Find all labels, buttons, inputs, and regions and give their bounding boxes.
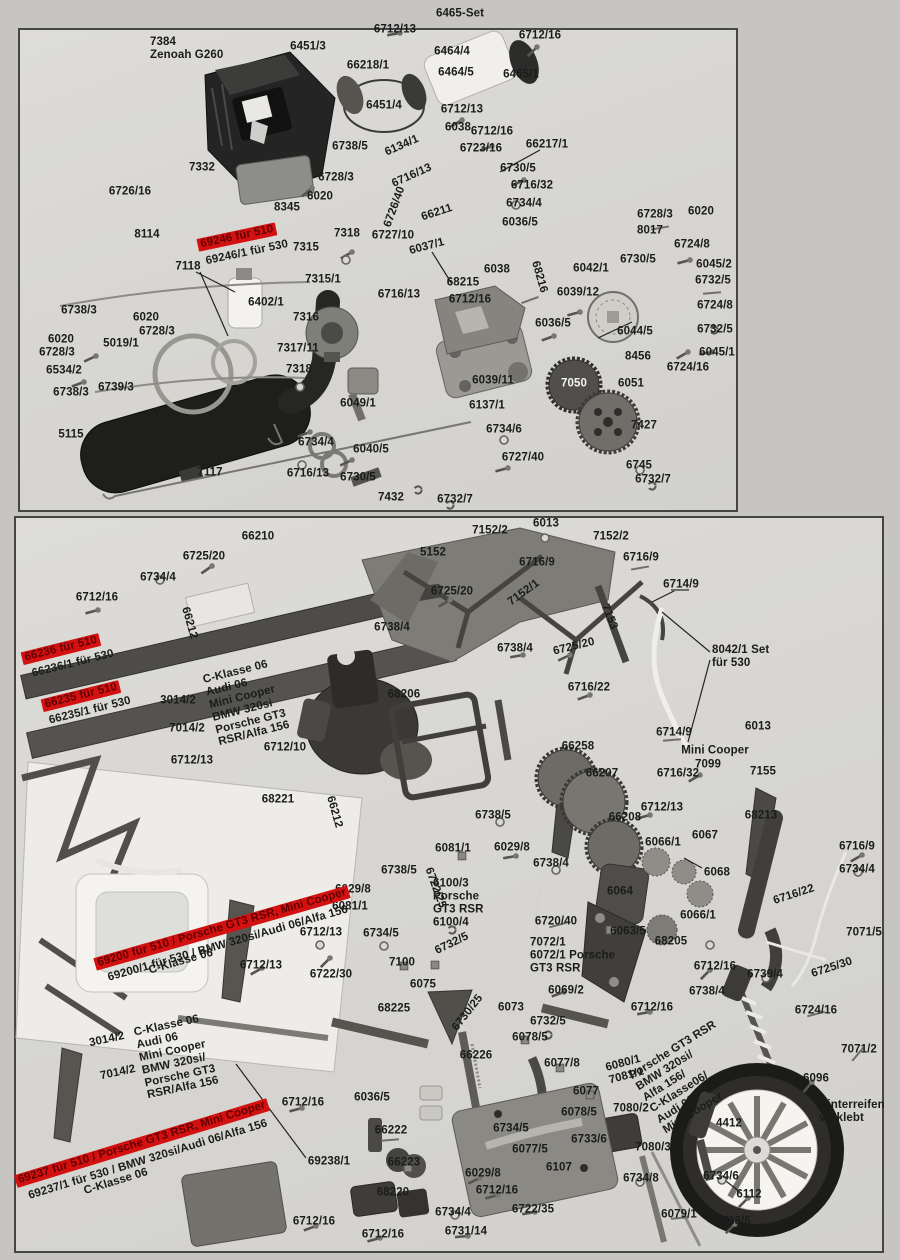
exploded-parts-diagram-page: { "colors": { "highlight_band": "#d41111…	[0, 0, 900, 1260]
part-label: 68220	[377, 1187, 409, 1200]
part-label: 6134/1	[383, 133, 421, 159]
part-label: 6732/5	[695, 275, 731, 288]
part-label: 6039/11	[472, 375, 514, 388]
part-label: 6044/5	[617, 326, 653, 339]
part-label: 66218/1	[347, 60, 389, 73]
part-label: 7100	[389, 957, 415, 970]
part-label: 6716/32	[657, 768, 699, 781]
part-label: 6064	[607, 886, 633, 899]
part-label: 6712/13	[374, 24, 416, 37]
part-label: C-Klasse 06 Audi 06 Mini Cooper BMW 320s…	[133, 1012, 220, 1103]
part-label: 6714/9	[663, 579, 699, 592]
part-label: 6036/5	[502, 217, 538, 230]
part-label: 68221	[262, 794, 294, 807]
part-label: 6465-Set	[436, 8, 484, 21]
part-label: 6712/10	[264, 742, 306, 755]
part-label: 6112	[736, 1189, 761, 1202]
part-label: 6465/1	[503, 69, 539, 82]
part-label: 68225	[378, 1003, 410, 1016]
part-label: 6077	[573, 1086, 599, 1099]
part-label: 6040/5	[353, 444, 389, 457]
part-label: 6730/5	[500, 163, 536, 176]
part-label: 6738/6	[715, 1216, 751, 1229]
part-label: 7153	[598, 603, 620, 632]
part-label: 6712/16	[631, 1002, 673, 1015]
part-label: 6712/16	[519, 30, 561, 43]
part-label: 6038	[445, 122, 471, 135]
part-label: 6739/3	[98, 382, 134, 395]
part-label: 68213	[745, 810, 777, 823]
part-label: 6734/5	[493, 1123, 529, 1136]
part-label: 6020	[133, 312, 159, 325]
part-label: 6067	[692, 830, 718, 843]
part-label: 6100/3 Porsche GT3 RSR 6100/4	[433, 877, 484, 929]
part-label: 6712/13	[641, 802, 683, 815]
part-label: 7152/2	[472, 525, 508, 538]
part-label: 6029/8	[494, 842, 530, 855]
part-label: 6078/5	[512, 1032, 548, 1045]
part-label: 6712/16	[76, 592, 118, 605]
part-label: Hinterreifen verklebt	[819, 1099, 885, 1125]
part-label: 6725/20	[552, 636, 596, 659]
part-label: 6738/4	[533, 858, 569, 871]
part-label: 6716/9	[839, 841, 875, 854]
part-label: 6734/6	[703, 1171, 739, 1184]
part-label: 6716/22	[568, 682, 610, 695]
part-label: 8456	[625, 351, 651, 364]
part-label: 6068	[704, 867, 730, 880]
part-label: 66208	[609, 812, 641, 825]
part-label: 66211	[420, 202, 454, 224]
part-label: 6732/7	[437, 494, 473, 507]
part-label: 6724/16	[667, 362, 709, 375]
part-label: 6738/4	[689, 986, 725, 999]
part-label: 6734/4	[435, 1207, 471, 1220]
part-label: 6045/1	[699, 347, 735, 360]
part-label: 6723/16	[460, 143, 502, 156]
part-label: 6738/5	[332, 141, 368, 154]
part-label: 6734/4	[298, 437, 334, 450]
part-label: 6451/4	[366, 100, 402, 113]
part-label: 7080/3	[635, 1142, 671, 1155]
part-label: 6063/5	[610, 926, 646, 939]
part-label: 66210	[242, 531, 274, 544]
part-label: 6724/8	[674, 239, 710, 252]
part-label: 7014/2	[99, 1063, 137, 1083]
part-label: 3014/2	[160, 695, 196, 708]
part-label: C-Klasse 06 Audi 06 Mini Cooper BMW 320s…	[202, 657, 291, 750]
part-label: 8042/1 Set für 530	[712, 644, 769, 670]
part-label: 6738/3	[61, 305, 97, 318]
part-label: 66212	[178, 606, 199, 641]
part-label: 66207	[586, 768, 618, 781]
part-label: 6039/12	[557, 287, 599, 300]
part-label: 6738/4	[497, 643, 533, 656]
part-label: 8114	[134, 229, 159, 242]
part-label: 6745	[626, 460, 652, 473]
part-label: 6714/9	[656, 727, 692, 740]
part-label: 6077/5	[512, 1144, 548, 1157]
part-label: 6738/5	[475, 810, 511, 823]
part-label: 6078/5	[561, 1107, 597, 1120]
part-label: 7155	[750, 766, 776, 779]
part-label: 6712/13	[240, 960, 282, 973]
part-label: 7432	[378, 492, 404, 505]
part-label: 6464/5	[438, 67, 474, 80]
part-label: 7072/1 6072/1 Porsche GT3 RSR	[530, 937, 615, 976]
part-label: 7152/1	[506, 577, 543, 608]
part-label: 6727/10	[372, 230, 414, 243]
part-label: 68206	[388, 689, 420, 702]
part-label: 66223	[388, 1157, 420, 1170]
part-label: 6716/13	[378, 289, 420, 302]
part-label: 6725/30	[810, 955, 854, 980]
part-label: 6020	[688, 206, 714, 219]
part-label: 6722/30	[310, 969, 352, 982]
part-label: 6073	[498, 1002, 524, 1015]
part-label: 5115	[58, 429, 83, 442]
part-label: 6731/14	[445, 1226, 487, 1239]
part-label: 68215	[447, 277, 479, 290]
part-label: 6045/2	[696, 259, 732, 272]
part-label: 6712/16	[282, 1097, 324, 1110]
part-label: 6725/20	[431, 586, 473, 599]
part-label: 6716/9	[623, 552, 659, 565]
part-label: 6732/5	[433, 930, 471, 957]
part-label: 6029/8	[465, 1168, 501, 1181]
part-label: 6137/1	[469, 400, 505, 413]
part-label: 6727/40	[502, 452, 544, 465]
part-label: 6734/4	[140, 572, 176, 585]
part-label: 6451/3	[290, 41, 326, 54]
part-label: 68216	[528, 260, 549, 295]
part-label: 6069/2	[548, 985, 584, 998]
part-label: 6049/1	[340, 398, 376, 411]
part-label: 6534/2	[46, 365, 82, 378]
part-label: 6013	[745, 721, 771, 734]
part-label: 6734/5	[363, 928, 399, 941]
part-label: 6712/16	[293, 1216, 335, 1229]
part-label: 6107	[546, 1162, 572, 1175]
part-label: 7332	[189, 162, 215, 175]
part-label: 6725/20	[183, 551, 225, 564]
part-label: 6739/4	[747, 969, 783, 982]
part-label: 6036/5	[535, 318, 571, 331]
part-label: 7080/2	[613, 1103, 649, 1116]
part-label: 7318	[334, 228, 360, 241]
part-label: 7427	[631, 420, 657, 433]
part-label: 6728/3	[318, 172, 354, 185]
part-label: 6464/4	[434, 46, 470, 59]
part-label: 6724/16	[795, 1005, 837, 1018]
part-label: 6733/6	[571, 1134, 607, 1147]
part-label: 6732/7	[635, 474, 671, 487]
part-label: 6728/3	[637, 209, 673, 222]
part-label: 7315	[293, 242, 319, 255]
part-label: 4412	[716, 1118, 742, 1131]
part-label: 6038	[484, 264, 510, 277]
part-label: 6726/40	[382, 185, 409, 229]
part-label: 7318	[286, 364, 312, 377]
part-label: 8345	[274, 202, 300, 215]
part-label: 6730/5	[620, 254, 656, 267]
part-label: 6734/6	[486, 424, 522, 437]
part-label: 7117	[197, 467, 222, 480]
part-label: 8017	[637, 225, 663, 238]
part-label: 7118	[175, 261, 200, 274]
part-label: 6716/13	[287, 468, 329, 481]
part-label: 66226	[460, 1050, 492, 1063]
part-label: 6738/5	[381, 865, 417, 878]
part-label: 6712/16	[362, 1229, 404, 1242]
part-label: 66212	[323, 795, 344, 830]
part-label: 6712/16	[694, 961, 736, 974]
part-label: 6712/16	[476, 1185, 518, 1198]
part-label: 6728/3	[139, 326, 175, 339]
part-label: 6077/8	[544, 1058, 580, 1071]
part-label: 6020	[307, 191, 333, 204]
part-label: 69238/1	[308, 1156, 350, 1169]
part-label: 6728/3	[39, 347, 75, 360]
part-label: 68205	[655, 936, 687, 949]
part-label: 6716/9	[519, 557, 555, 570]
part-label: 6724/8	[697, 300, 733, 313]
part-label: 6732/5	[697, 324, 733, 337]
part-label: 6066/1	[680, 910, 716, 923]
part-label: 7071/2	[841, 1044, 877, 1057]
part-label: 6726/16	[109, 186, 151, 199]
part-label: 6734/4	[506, 198, 542, 211]
part-label: 6712/16	[471, 126, 513, 139]
part-label: 6402/1	[248, 297, 284, 310]
part-label: 6732/5	[530, 1016, 566, 1029]
part-label: 6712/13	[441, 104, 483, 117]
part-label: 6051	[618, 378, 644, 391]
part-label: 6079/1	[661, 1209, 697, 1222]
part-label: 6738/3	[53, 387, 89, 400]
part-label: 5152	[420, 547, 446, 560]
labels-layer: 6465-Set6712/136712/167384 Zenoah G26064…	[0, 0, 900, 1260]
part-label: 6020	[48, 334, 74, 347]
part-label: 6036/5	[354, 1092, 390, 1105]
part-label: 6730/25	[450, 992, 486, 1033]
part-label: 6712/13	[300, 927, 342, 940]
part-label: 7384 Zenoah G260	[150, 36, 223, 62]
part-label: 6066/1	[645, 837, 681, 850]
part-label: 66258	[562, 741, 594, 754]
part-label: 6716/22	[772, 882, 816, 907]
part-label: 3014/2	[88, 1030, 126, 1050]
part-label: 5019/1	[103, 338, 139, 351]
part-label: 6734/8	[623, 1173, 659, 1186]
part-label: 6081/1	[435, 843, 471, 856]
part-label: 6734/4	[839, 864, 875, 877]
part-label: 7071/5	[846, 927, 882, 940]
part-label: 6738/4	[374, 622, 410, 635]
part-label: 66222	[375, 1125, 407, 1138]
part-label: Mini Cooper	[681, 745, 749, 758]
part-label: 6722/35	[512, 1204, 554, 1217]
part-label: 6042/1	[573, 263, 609, 276]
part-label: 66217/1	[526, 139, 568, 152]
part-label: 7014/2	[169, 723, 205, 736]
part-label: 6013	[533, 518, 559, 531]
part-label: 6730/5	[340, 472, 376, 485]
part-label: 6075	[410, 979, 436, 992]
part-label: 6712/13	[171, 755, 213, 768]
part-label: 6096	[803, 1073, 829, 1086]
part-label: 7316	[293, 312, 319, 325]
part-label: 7152/2	[593, 531, 629, 544]
part-label: 7317/11	[277, 343, 319, 356]
part-label: 7315/1	[305, 274, 341, 287]
part-label: 6720/40	[535, 916, 577, 929]
part-label: 6716/32	[511, 180, 553, 193]
part-label: 7050	[561, 378, 587, 391]
part-label: 6712/16	[449, 294, 491, 307]
